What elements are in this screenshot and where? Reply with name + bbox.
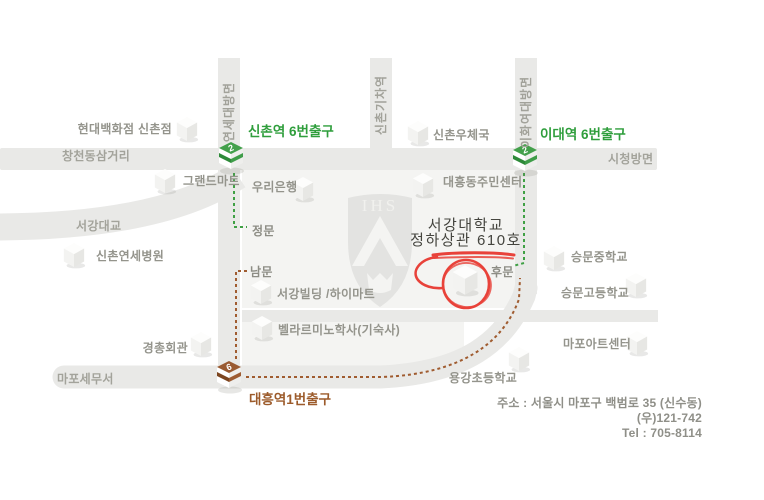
address-line3: Tel : 705-8114 xyxy=(497,426,702,441)
destination-line1: 서강대학교 xyxy=(398,218,534,233)
road-label-sinchon-rail: 신촌기차역 xyxy=(375,55,387,155)
road-label-changcheon: 창천동삼거리 xyxy=(62,150,130,162)
building-icon-kyungchong xyxy=(189,330,213,358)
building-label-post-office: 신촌우체국 xyxy=(433,129,490,141)
station-label-edae: 이대역 6번출구 xyxy=(540,129,626,141)
building-icon-post-office xyxy=(406,119,430,147)
building-icon-sogang-building xyxy=(249,278,273,306)
station-label-sinchon: 신촌역 6번출구 xyxy=(248,126,334,138)
building-icon-seungmun-middle xyxy=(542,244,566,272)
building-label-mapo-art: 마포아트센터 xyxy=(563,338,631,350)
road-label-ewha-direction: 이화여대방면 xyxy=(520,62,532,162)
gate-label-back: 후문 xyxy=(491,266,514,278)
sogang-emblem-letters: IHS xyxy=(348,196,412,216)
address-block: 주소 : 서울시 마포구 백범로 35 (신수동) (우)121-742 Tel… xyxy=(497,396,702,441)
gate-label-main: 정문 xyxy=(252,225,275,237)
building-icon-jeonghasang-hall xyxy=(450,263,480,297)
building-icon-yonggang xyxy=(507,345,531,373)
building-icon-bellarmino xyxy=(250,314,274,342)
station-label-daeheung: 대흥역1번출구 xyxy=(249,394,331,406)
road-label-mapo-tax-office: 마포세무서 xyxy=(57,373,114,385)
building-label-seungmun-middle: 승문중학교 xyxy=(571,251,628,263)
address-line1: 주소 : 서울시 마포구 백범로 35 (신수동) xyxy=(497,396,702,411)
building-icon-grandmart xyxy=(153,167,177,195)
building-icon-yonsei-hospital xyxy=(62,241,86,269)
building-icon-daeheung-center xyxy=(411,171,435,199)
building-label-bellarmino: 벨라르미노학사(기숙사) xyxy=(278,324,400,336)
road-label-sogang-bridge: 서강대교 xyxy=(76,220,121,232)
building-label-yonsei-hospital: 신촌연세병원 xyxy=(96,250,164,262)
sogang-university-location-map: 2 2 6 연세대방면 신촌기차역 이화여대방면 창천동삼거리 시청방면 서강대… xyxy=(0,0,764,500)
building-icon-hyundai xyxy=(175,115,199,143)
building-label-grandmart: 그랜드마트 xyxy=(183,175,240,187)
gate-label-south: 남문 xyxy=(250,266,273,278)
road-label-cityhall-direction: 시청방면 xyxy=(608,153,653,165)
road-horizontal-middle xyxy=(242,310,658,322)
destination-line2: 정하상관 610호 xyxy=(398,233,534,248)
building-label-daeheung-center: 대흥동주민센터 xyxy=(443,176,522,188)
building-label-woori-bank: 우리은행 xyxy=(252,181,297,193)
road-label-yonsei-direction: 연세대방면 xyxy=(223,62,235,162)
destination-title: 서강대학교 정하상관 610호 xyxy=(398,218,534,248)
address-line2: (우)121-742 xyxy=(497,411,702,426)
building-label-yonggang: 용강초등학교 xyxy=(449,372,517,384)
station-marker-daeheung: 6 xyxy=(214,358,244,394)
building-label-sogang-building: 서강빌딩 /하이마트 xyxy=(277,288,375,300)
building-label-hyundai: 현대백화점 신촌점 xyxy=(58,123,172,135)
building-label-seungmun-high: 승문고등학교 xyxy=(561,287,629,299)
building-label-kyungchong: 경총회관 xyxy=(116,342,188,354)
